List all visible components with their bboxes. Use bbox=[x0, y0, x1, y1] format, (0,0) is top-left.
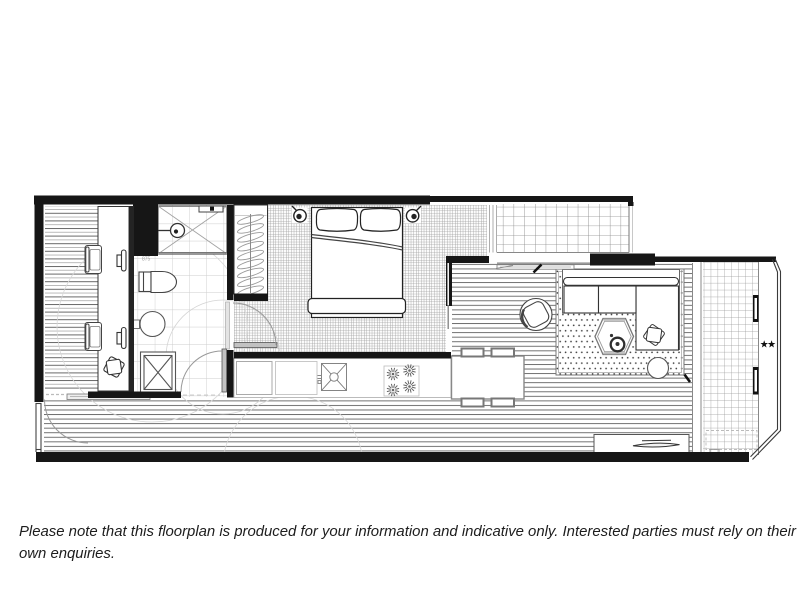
svg-text:875: 875 bbox=[142, 257, 151, 263]
